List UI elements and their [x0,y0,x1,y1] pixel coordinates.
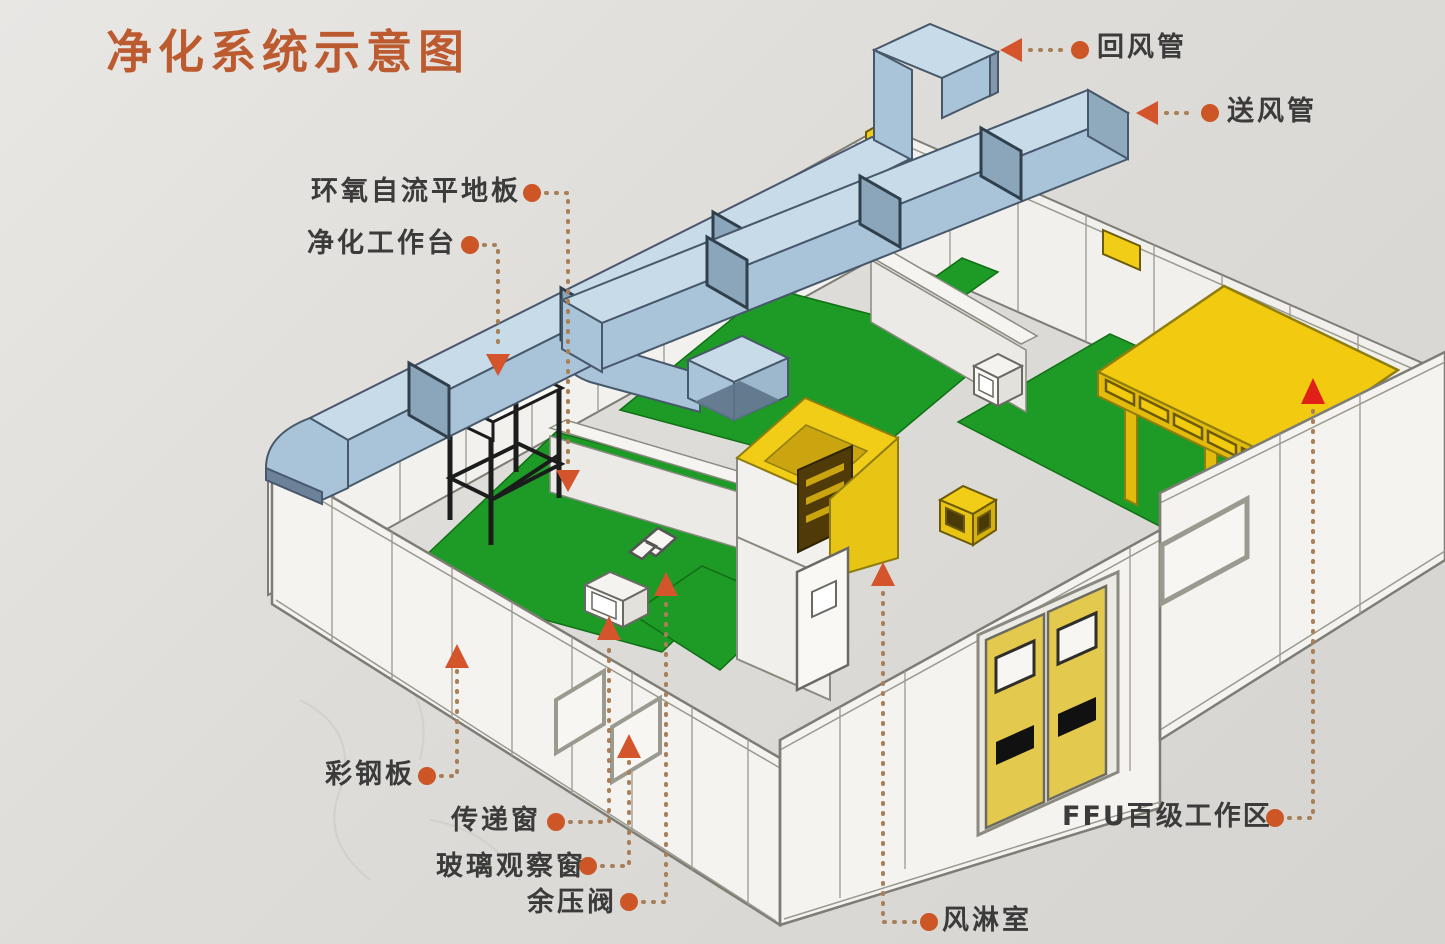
page-title: 净化系统示意图 [106,16,470,82]
label-observation-window: 玻璃观察窗 [436,852,586,882]
label-color-steel-panel: 彩钢板 [325,760,415,790]
label-clean-workbench: 净化工作台 [307,229,457,259]
yellow-pass-box [940,486,996,545]
label-transfer-window: 传递窗 [451,806,541,836]
label-ffu-area: FFU百级工作区 [1062,802,1272,832]
wall-pass-box [974,354,1022,406]
label-return-duct: 回风管 [1097,33,1187,63]
cleanroom-schematic-page: 净化系统示意图 回风管 送风管 环氧自流平地板 净化工作台 彩钢板 传递窗 玻璃… [0,0,1445,944]
interior-door [797,548,848,690]
label-air-shower: 风淋室 [942,906,1032,936]
label-supply-duct: 送风管 [1227,97,1317,127]
arrow-return-duct [1000,38,1022,62]
label-epoxy-floor: 环氧自流平地板 [311,177,521,207]
label-pressure-valve: 余压阀 [527,888,617,918]
arrow-supply-duct [1136,101,1158,125]
